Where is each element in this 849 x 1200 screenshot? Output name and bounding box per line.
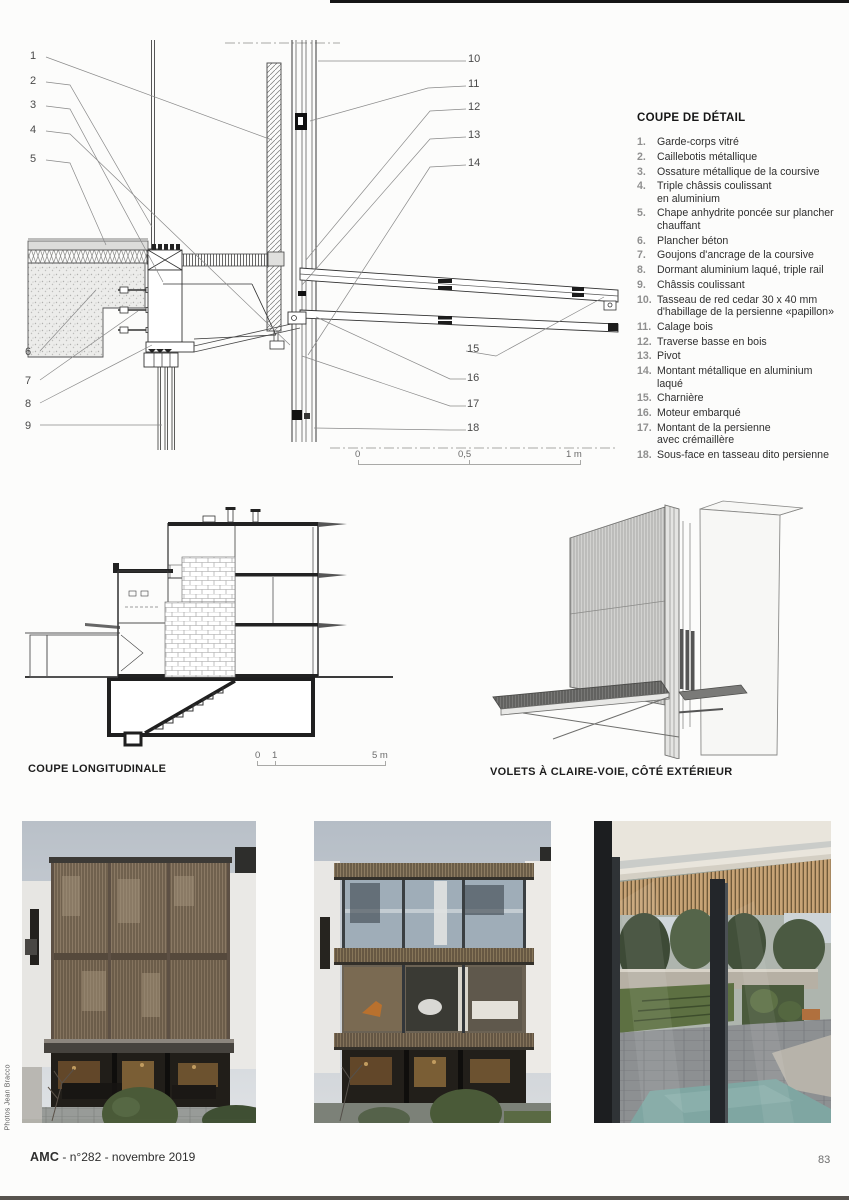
legend-item: 5.Chape anhydrite poncée sur plancher ch… bbox=[637, 207, 849, 232]
callout-1: 1 bbox=[30, 51, 36, 62]
scale-0: 0 bbox=[355, 449, 360, 460]
brick-core bbox=[165, 557, 235, 677]
glass-balustrade bbox=[147, 40, 159, 264]
persienne-closed-panel bbox=[267, 63, 281, 345]
photo-facade-shutters-open bbox=[314, 821, 551, 1123]
legend-item: 9.Châssis coulissant bbox=[637, 279, 849, 291]
legend-item: 7.Goujons d'ancrage de la coursive bbox=[637, 249, 849, 261]
photo1-art bbox=[22, 821, 256, 1123]
legend-item: 15.Charnière bbox=[637, 392, 849, 404]
wall-box bbox=[700, 501, 803, 755]
slatted-panel bbox=[570, 507, 665, 705]
section-scale-bar: 0 1 5 m bbox=[252, 750, 397, 770]
callout-14: 14 bbox=[468, 158, 480, 169]
callout-10: 10 bbox=[468, 54, 480, 65]
triple-chassis-vertical bbox=[292, 40, 316, 442]
detail-legend: COUPE DE DÉTAIL 1.Garde-corps vitré 2.Ca… bbox=[637, 112, 849, 464]
photo2-art bbox=[314, 821, 551, 1123]
legend-item: 1.Garde-corps vitré bbox=[637, 136, 849, 148]
persienne-open-wings bbox=[270, 268, 618, 349]
callout-6: 6 bbox=[25, 347, 31, 358]
callout-4: 4 bbox=[30, 125, 36, 136]
legend-item: 17.Montant de la persienne avec crémaill… bbox=[637, 422, 849, 447]
legend-item: 2.Caillebotis métallique bbox=[637, 151, 849, 163]
footer-issue: - n°282 - novembre 2019 bbox=[59, 1150, 195, 1164]
callout-7: 7 bbox=[25, 376, 31, 387]
callout-5: 5 bbox=[30, 154, 36, 165]
callout-18: 18 bbox=[467, 423, 479, 434]
legend-item: 13.Pivot bbox=[637, 350, 849, 362]
dormant-triple-rail bbox=[144, 349, 178, 450]
scale-1m: 1 m bbox=[566, 449, 582, 460]
basement bbox=[109, 679, 313, 745]
callout-15: 15 bbox=[467, 344, 479, 355]
photo-facade-shutters-closed bbox=[22, 821, 256, 1123]
floor-slab bbox=[28, 239, 148, 357]
callout-17: 17 bbox=[467, 399, 479, 410]
axonometric-shutters-drawing bbox=[483, 497, 823, 759]
legend-item: 3.Ossature métallique de la coursive bbox=[637, 166, 849, 178]
detail-scale-bar: 0 0,5 1 m bbox=[350, 449, 595, 469]
mullion-post bbox=[665, 505, 679, 759]
legend-item: 12.Traverse basse en bois bbox=[637, 336, 849, 348]
callout-9: 9 bbox=[25, 421, 31, 432]
footer: AMC - n°282 - novembre 2019 bbox=[30, 1150, 195, 1164]
scale-0: 0 bbox=[255, 750, 260, 761]
legend-item: 14.Montant métallique en aluminium laqué bbox=[637, 365, 849, 390]
left-annex bbox=[25, 623, 120, 677]
legend-item: 6.Plancher béton bbox=[637, 235, 849, 247]
longitudinal-section-caption: COUPE LONGITUDINALE bbox=[28, 763, 166, 775]
callout-2: 2 bbox=[30, 76, 36, 87]
legend-item: 10.Tasseau de red cedar 30 x 40 mm d'hab… bbox=[637, 294, 849, 319]
legend-item: 4.Triple châssis coulissant en aluminium bbox=[637, 180, 849, 205]
callout-13: 13 bbox=[468, 130, 480, 141]
legend-title: COUPE DE DÉTAIL bbox=[637, 112, 849, 124]
photo3-art bbox=[594, 821, 831, 1123]
roof-chimneys bbox=[203, 507, 261, 522]
footer-brand: AMC bbox=[30, 1150, 59, 1164]
callout-12: 12 bbox=[468, 102, 480, 113]
callout-3: 3 bbox=[30, 100, 36, 111]
legend-item: 16.Moteur embarqué bbox=[637, 407, 849, 419]
page-number: 83 bbox=[818, 1154, 830, 1166]
page-top-edge bbox=[330, 0, 849, 3]
legend-item: 8.Dormant aluminium laqué, triple rail bbox=[637, 264, 849, 276]
caillebotis-grating bbox=[182, 252, 284, 266]
legend-list: 1.Garde-corps vitré 2.Caillebotis métall… bbox=[637, 136, 849, 461]
page-bottom-edge bbox=[0, 1196, 849, 1200]
photo-interior-terrace bbox=[594, 821, 831, 1123]
scale-05: 0,5 bbox=[458, 449, 471, 460]
photo-credit: Photos Jean Bracco bbox=[5, 1041, 12, 1131]
legend-item: 11.Calage bois bbox=[637, 321, 849, 333]
callout-8: 8 bbox=[25, 399, 31, 410]
legend-item: 18.Sous-face en tasseau dito persienne bbox=[637, 449, 849, 461]
facade-fins bbox=[318, 522, 347, 628]
scale-5m: 5 m bbox=[372, 750, 388, 761]
longitudinal-section-drawing bbox=[25, 495, 395, 757]
callout-11: 11 bbox=[468, 79, 479, 90]
detail-section-drawing bbox=[20, 35, 620, 465]
scale-1: 1 bbox=[272, 750, 277, 761]
callout-16: 16 bbox=[467, 373, 479, 384]
axonometric-caption: VOLETS À CLAIRE-VOIE, CÔTÉ EXTÉRIEUR bbox=[490, 766, 732, 778]
